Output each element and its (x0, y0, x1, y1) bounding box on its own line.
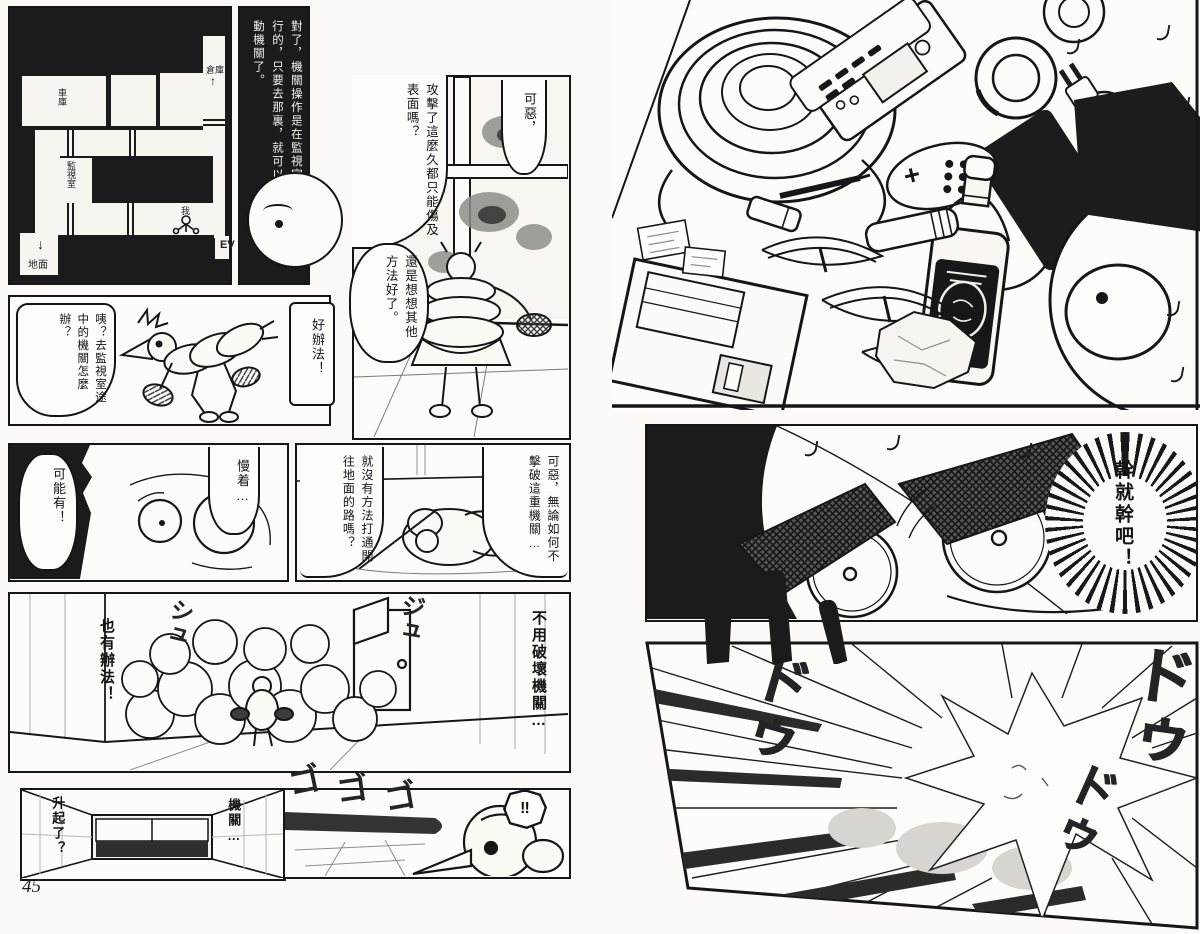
text-no-destroy: 不用破壞機關… (528, 610, 549, 750)
map-label-ground: 地面 (28, 256, 48, 271)
map-label-me: 我 (181, 204, 190, 217)
raised-claws (685, 562, 875, 664)
desk-junk-art (612, 0, 1200, 410)
bubble-good-idea: 好辦法！ (289, 302, 335, 406)
panel-floor-map: 車庫 倉庫 ↑ 監視室 我 EV ↓ 地面 (8, 6, 232, 285)
sfx-go3: ゴ (380, 770, 420, 821)
bubble-attack: 攻擊了這麼久都只能傷及表面嗎？ (352, 75, 448, 249)
map-arrow-up-icon: ↑ (210, 74, 216, 88)
bubble-wait: 慢着… (208, 447, 260, 535)
bubble-maybe: 可能有！ (18, 453, 78, 571)
page-number: 45 (22, 876, 41, 898)
bubble-think-other: 還是想想其他方法好了。 (349, 243, 429, 363)
bubble-no-path: 就沒有方法打通開往地面的路嗎？ (300, 447, 384, 578)
panel-desk-junk (612, 0, 1200, 410)
manga-spread: 車庫 倉庫 ↑ 監視室 我 EV ↓ 地面 對了，機關操作是在監視室進行的，只要… (0, 0, 1200, 934)
character-head (247, 172, 343, 268)
panel-smoke-room (8, 592, 571, 773)
text-kikan: 機關… (224, 798, 242, 864)
sfx-go2: ゴ (333, 762, 371, 812)
map-label-elevator: EV (220, 239, 235, 251)
bubble-resolve: 幹就幹吧！ (1109, 460, 1136, 590)
text-rising: 升起了？ (48, 796, 66, 866)
character-brow-icon (263, 204, 293, 218)
bug-creature-side (122, 317, 278, 422)
bubble-damn: 可惡， (501, 80, 547, 175)
bubble-surprise: ‼ (506, 792, 545, 827)
character-eye-icon (275, 220, 283, 228)
map-arrow-down-icon: ↓ (37, 236, 44, 252)
map-label-garage: 車庫 (56, 88, 69, 106)
map-label-monitor-room: 監視室 (65, 161, 78, 188)
smoke-room-art (10, 594, 568, 770)
bubble-surprise-outer: ‼ (503, 789, 547, 829)
text-also-way: 也有辦法！ (96, 618, 117, 748)
bubble-eh-monitor: 咦？去監視室途中的機關怎麼辦？ (16, 303, 116, 417)
sfx-dou2: ドゥ (1100, 636, 1200, 776)
